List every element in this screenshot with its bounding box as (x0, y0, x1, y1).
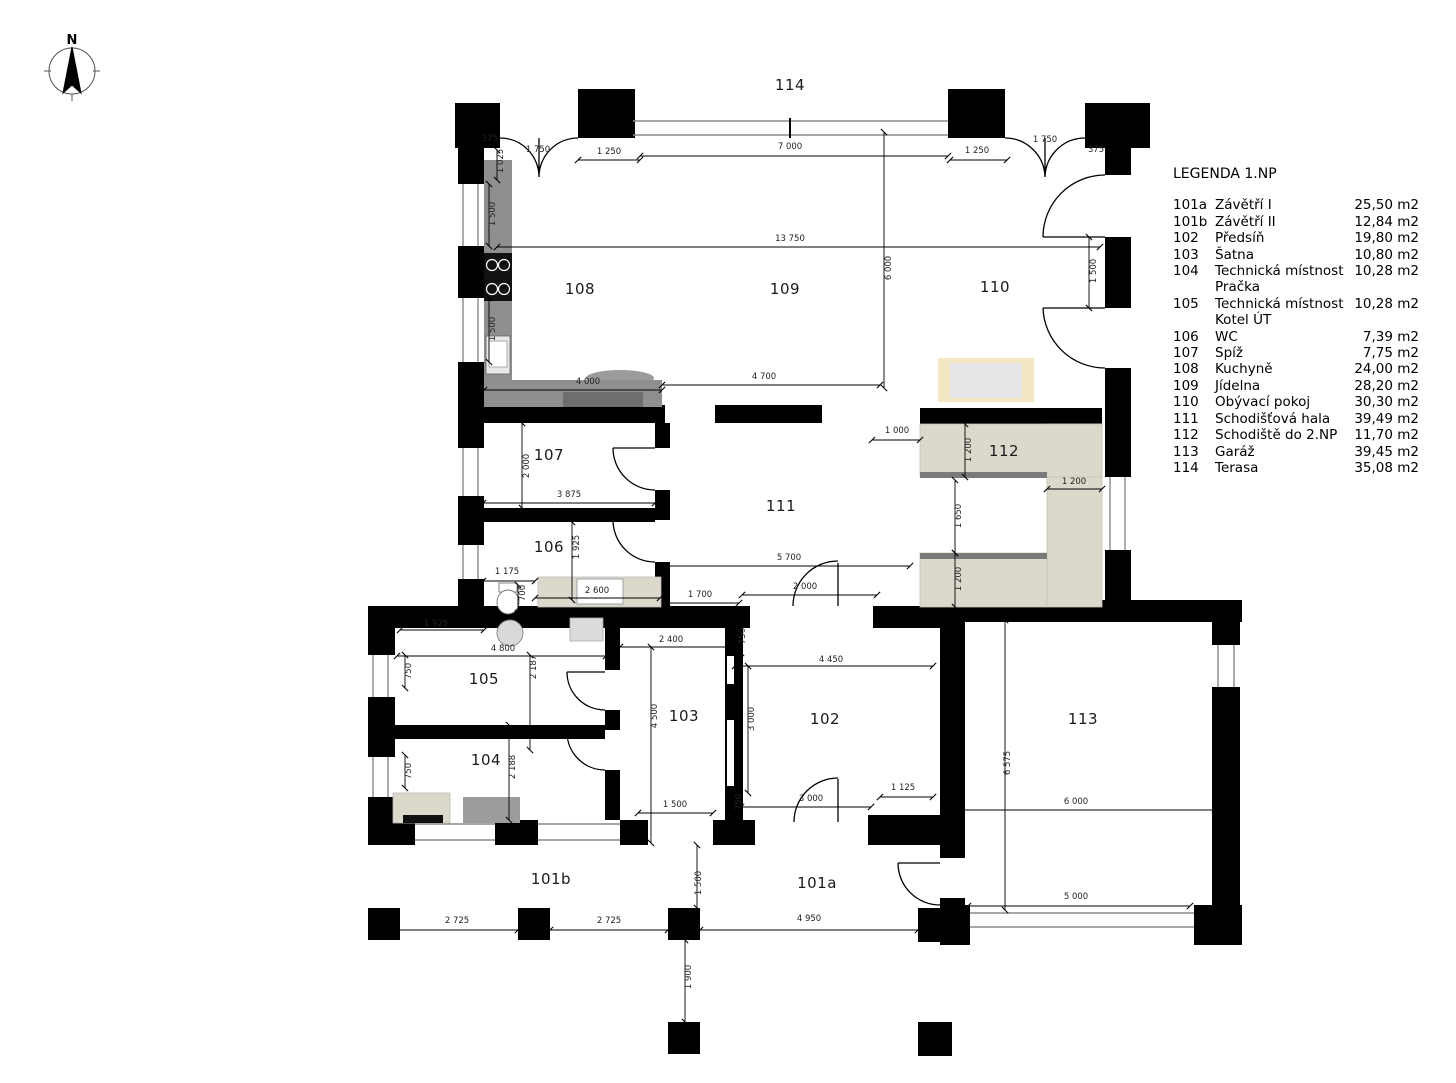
dimension-label: 1 925 (572, 535, 582, 559)
legend-room-name: Jídelna (1215, 378, 1347, 394)
table-icon (570, 618, 603, 641)
legend-room-code: 114 (1173, 460, 1215, 476)
legend-room-name: Šatna (1215, 247, 1347, 263)
kitchen-counter-dark (563, 392, 643, 407)
dimension-label: 2 725 (445, 916, 469, 926)
dimension-label: 750 (734, 794, 744, 810)
legend-room-code: 106 (1173, 329, 1215, 345)
room-number-label: 104 (471, 751, 501, 769)
legend-room-name: Závětří II (1215, 214, 1347, 230)
floor-plan: N 11410810911010711111210610510410310211… (0, 0, 1456, 1083)
dimension-label: 1 200 (1062, 477, 1086, 487)
legend-room-name: Spíž (1215, 345, 1347, 361)
room-number-label: 102 (810, 710, 840, 728)
furniture-group (393, 160, 1034, 823)
dimension-label: 2 187 (529, 655, 539, 679)
dimension-label: 13 750 (775, 234, 805, 244)
legend-room-code: 101a (1173, 197, 1215, 213)
dimension-label: 1 500 (694, 871, 704, 895)
room-number-label: 107 (534, 446, 564, 464)
north-arrow-icon (44, 47, 100, 101)
dimension-label: 4 800 (491, 644, 515, 654)
dimension-label: 5 000 (1064, 892, 1088, 902)
legend-room-subname: Pračka (1215, 279, 1347, 295)
legend-room-name: Terasa (1215, 460, 1347, 476)
legend-room-area: 35,08 m2 (1347, 460, 1419, 476)
dimension-label: 1 900 (684, 965, 694, 989)
room-number-label: 105 (469, 670, 499, 688)
boiler-icon (497, 620, 523, 646)
room-number-label: 113 (1068, 710, 1098, 728)
room-number-label: 110 (980, 278, 1010, 296)
dimension-label: 1 200 (954, 567, 964, 591)
dimension-label: 4 500 (650, 704, 660, 728)
dimension-label: 2 600 (585, 586, 609, 596)
dimension-label: 375 (1088, 145, 1104, 155)
legend-row: 101a Závětří I 25,50 m2 (1173, 197, 1419, 213)
room-number-label: 106 (534, 538, 564, 556)
legend-room-area: 30,30 m2 (1347, 394, 1419, 410)
legend-room-area: 7,39 m2 (1347, 329, 1419, 345)
dimension-label: 1 200 (964, 438, 974, 462)
room-number-label: 103 (669, 707, 699, 725)
dimension-label: 1 250 (965, 146, 989, 156)
legend-title: LEGENDA 1.NP (1173, 166, 1419, 182)
room-number-label: 112 (989, 442, 1019, 460)
dimension-label: 2 000 (793, 582, 817, 592)
dimension-label: 1 500 (663, 800, 687, 810)
dimension-label: 700 (518, 585, 528, 601)
toilet-icon (497, 590, 519, 614)
dimension-label: 1 500 (488, 202, 498, 226)
dimension-label: 7 000 (778, 142, 802, 152)
room-number-label: 111 (766, 497, 796, 515)
legend-room-area: 24,00 m2 (1347, 361, 1419, 377)
dimension-label: 6 575 (1003, 751, 1013, 775)
dimension-label: 1 925 (424, 619, 448, 629)
north-label: N (67, 33, 78, 48)
legend-room-area: 25,50 m2 (1347, 197, 1419, 213)
legend-row: 109 Jídelna 28,20 m2 (1173, 378, 1419, 394)
room-number-label: 108 (565, 280, 595, 298)
legend-room-code: 104 (1173, 263, 1215, 279)
dimension-label: 1 700 (688, 590, 712, 600)
legend-room-name: Předsíň (1215, 230, 1347, 246)
dimension-label: 4 950 (797, 914, 821, 924)
room-number-label: 101a (797, 874, 837, 892)
legend-room-area: 39,49 m2 (1347, 411, 1419, 427)
dimension-label: 1 125 (891, 783, 915, 793)
room-number-label: 109 (770, 280, 800, 298)
legend-room-code: 112 (1173, 427, 1215, 443)
legend-room-name: Technická místnostPračka (1215, 263, 1347, 296)
legend-row: 112 Schodiště do 2.NP 11,70 m2 (1173, 427, 1419, 443)
dimension-label: 750 (404, 663, 414, 679)
legend-row: 102 Předsíň 19,80 m2 (1173, 230, 1419, 246)
legend-row: 105 Technická místnostKotel ÚT 10,28 m2 (1173, 296, 1419, 329)
dryer-icon (463, 797, 520, 823)
dimension-label: 5 700 (777, 553, 801, 563)
dimension-label: 1 500 (488, 317, 498, 341)
legend-room-code: 113 (1173, 444, 1215, 460)
dimension-label: 1 025 (496, 149, 506, 173)
legend-room-code: 101b (1173, 214, 1215, 230)
wall-pockets (727, 656, 734, 786)
dimension-label: 1 175 (495, 567, 519, 577)
room-number-label: 101b (531, 870, 571, 888)
legend-room-code: 102 (1173, 230, 1215, 246)
dimension-label: 2 725 (597, 916, 621, 926)
dimension-label: 1 000 (885, 426, 909, 436)
legend-room-code: 108 (1173, 361, 1215, 377)
legend-room-area: 10,28 m2 (1347, 296, 1419, 312)
legend-row: 111 Schodišťová hala 39,49 m2 (1173, 411, 1419, 427)
legend-row: 106 WC 7,39 m2 (1173, 329, 1419, 345)
legend-room-area: 19,80 m2 (1347, 230, 1419, 246)
dimension-label: 1 750 (1033, 135, 1057, 145)
legend-row: 101b Závětří II 12,84 m2 (1173, 214, 1419, 230)
legend-row: 107 Spíž 7,75 m2 (1173, 345, 1419, 361)
dimension-label: 750 (404, 763, 414, 779)
legend-room-area: 28,20 m2 (1347, 378, 1419, 394)
legend-room-area: 39,45 m2 (1347, 444, 1419, 460)
room-number-label: 114 (775, 76, 805, 94)
dimension-label: 1 500 (1089, 259, 1099, 283)
legend-row: 113 Garáž 39,45 m2 (1173, 444, 1419, 460)
dimension-label: 2 188 (508, 755, 518, 779)
legend-room-area: 7,75 m2 (1347, 345, 1419, 361)
legend-row: 104 Technická místnostPračka 10,28 m2 (1173, 263, 1419, 296)
dimension-label: 4 700 (752, 372, 776, 382)
legend-room-area: 12,84 m2 (1347, 214, 1419, 230)
dimension-label: 3 000 (799, 794, 823, 804)
legend-room-name: Závětří I (1215, 197, 1347, 213)
legend-room-code: 105 (1173, 296, 1215, 312)
dimension-label: 750 (738, 628, 748, 644)
dimension-label: 4 450 (819, 655, 843, 665)
legend-room-name: Schodiště do 2.NP (1215, 427, 1347, 443)
legend: LEGENDA 1.NP 101a Závětří I 25,50 m2 101… (1173, 166, 1419, 476)
legend-row: 110 Obývací pokoj 30,30 m2 (1173, 394, 1419, 410)
legend-room-name: Obývací pokoj (1215, 394, 1347, 410)
legend-room-name: Schodišťová hala (1215, 411, 1347, 427)
legend-room-area: 11,70 m2 (1347, 427, 1419, 443)
dimension-label: 2 000 (522, 454, 532, 478)
cooktop-icon (484, 253, 512, 301)
dimension-label: 3 875 (557, 490, 581, 500)
dimension-label: 1 650 (954, 504, 964, 528)
legend-room-code: 110 (1173, 394, 1215, 410)
dimension-label: 3 000 (747, 707, 757, 731)
floor-plan-drawing: N (0, 0, 1456, 1083)
legend-row: 114 Terasa 35,08 m2 (1173, 460, 1419, 476)
dimension-label: 4 000 (576, 377, 600, 387)
legend-room-code: 109 (1173, 378, 1215, 394)
legend-room-area: 10,28 m2 (1347, 263, 1419, 279)
legend-room-name: Garáž (1215, 444, 1347, 460)
legend-room-code: 103 (1173, 247, 1215, 263)
legend-room-subname: Kotel ÚT (1215, 312, 1347, 328)
dimension-label: 1 250 (597, 147, 621, 157)
legend-room-area: 10,80 m2 (1347, 247, 1419, 263)
legend-room-code: 111 (1173, 411, 1215, 427)
legend-room-name: Technická místnostKotel ÚT (1215, 296, 1347, 329)
legend-room-name: Kuchyně (1215, 361, 1347, 377)
dimension-label: 6 000 (1064, 797, 1088, 807)
legend-row: 103 Šatna 10,80 m2 (1173, 247, 1419, 263)
dimension-label: 375 (482, 134, 498, 144)
legend-room-code: 107 (1173, 345, 1215, 361)
legend-room-name: WC (1215, 329, 1347, 345)
dimension-label: 6 000 (884, 256, 894, 280)
dimension-label: 2 400 (659, 635, 683, 645)
legend-row: 108 Kuchyně 24,00 m2 (1173, 361, 1419, 377)
dimension-label: 1 750 (526, 145, 550, 155)
